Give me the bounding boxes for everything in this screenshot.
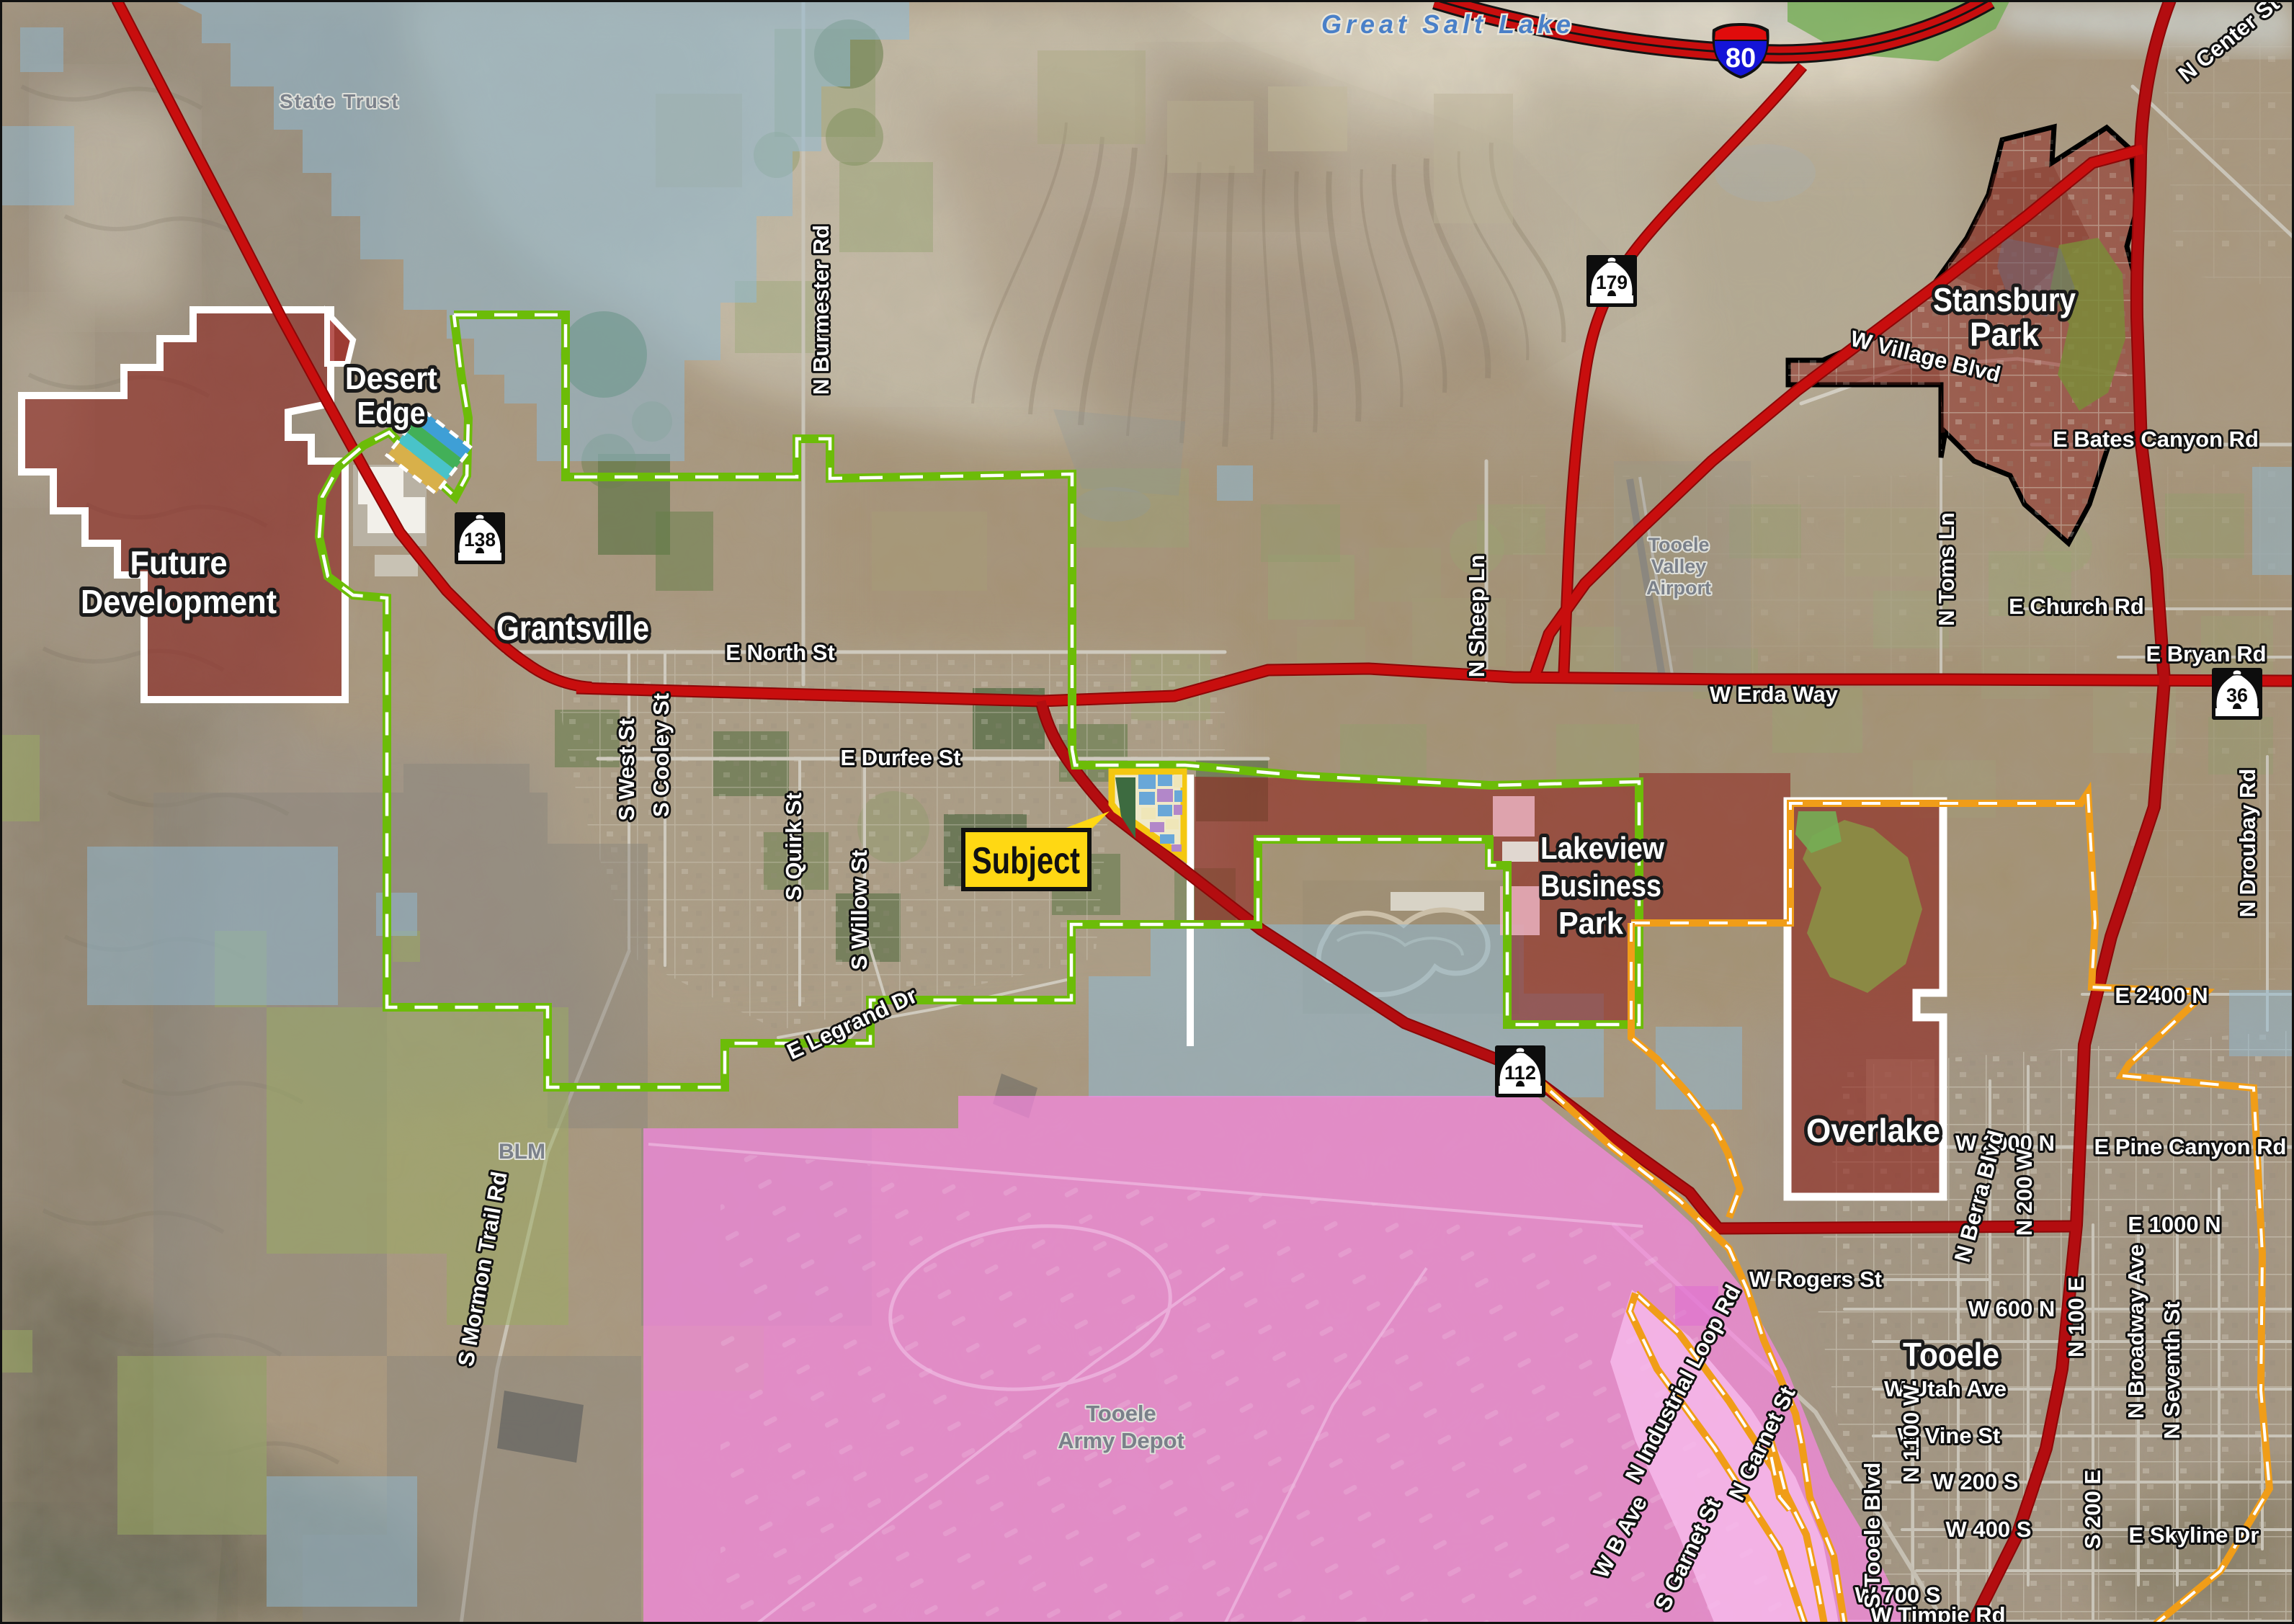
svg-text:Army Depot: Army Depot <box>1058 1428 1184 1453</box>
svg-text:State Trust: State Trust <box>280 90 400 112</box>
svg-text:E Durfee St: E Durfee St <box>840 745 960 770</box>
svg-text:Tooele: Tooele <box>1648 534 1709 556</box>
svg-text:N Burmester Rd: N Burmester Rd <box>808 225 834 395</box>
svg-text:S Cooley St: S Cooley St <box>648 693 674 817</box>
svg-text:S 200 E: S 200 E <box>2080 1470 2105 1549</box>
svg-text:E 2400 N: E 2400 N <box>2115 983 2208 1008</box>
svg-text:S Quirk St: S Quirk St <box>781 793 806 901</box>
svg-text:S Tooele Blvd: S Tooele Blvd <box>1860 1463 1885 1609</box>
svg-text:Tooele: Tooele <box>1903 1336 1999 1373</box>
svg-text:N 1100 W: N 1100 W <box>1898 1384 1924 1483</box>
svg-text:Stansbury: Stansbury <box>1933 281 2076 318</box>
svg-text:W Rogers St: W Rogers St <box>1749 1267 1882 1292</box>
svg-text:138: 138 <box>464 529 496 550</box>
svg-text:E Bryan Rd: E Bryan Rd <box>2146 641 2266 666</box>
svg-text:E Bates Canyon Rd: E Bates Canyon Rd <box>2053 427 2259 452</box>
svg-text:Overlake: Overlake <box>1806 1112 1940 1149</box>
svg-text:W Erda Way: W Erda Way <box>1710 682 1839 707</box>
svg-text:Valley: Valley <box>1651 556 1707 577</box>
svg-text:E Skyline Dr: E Skyline Dr <box>2129 1522 2259 1548</box>
svg-text:Desert: Desert <box>345 361 437 396</box>
svg-text:N Sheep Ln: N Sheep Ln <box>1464 555 1489 678</box>
svg-text:W Timpie Rd: W Timpie Rd <box>1870 1602 2005 1624</box>
svg-text:Business: Business <box>1540 868 1661 904</box>
svg-text:112: 112 <box>1504 1062 1536 1084</box>
svg-text:Subject: Subject <box>972 840 1080 882</box>
svg-text:36: 36 <box>2226 684 2248 706</box>
svg-text:Park: Park <box>1970 316 2039 353</box>
svg-text:Grantsville: Grantsville <box>496 610 649 648</box>
svg-text:Development: Development <box>81 583 277 620</box>
svg-text:E Church Rd: E Church Rd <box>2009 594 2144 619</box>
svg-text:E North St: E North St <box>726 640 835 665</box>
svg-text:W 400 S: W 400 S <box>1946 1517 2032 1542</box>
svg-text:Great Salt Lake: Great Salt Lake <box>1321 9 1575 39</box>
svg-text:E 1000 N: E 1000 N <box>2128 1212 2221 1237</box>
svg-text:N Broadway Ave: N Broadway Ave <box>2123 1244 2148 1419</box>
svg-text:N 100 E: N 100 E <box>2063 1277 2089 1357</box>
svg-text:Airport: Airport <box>1646 577 1711 599</box>
svg-text:N Seventh St: N Seventh St <box>2159 1301 2184 1439</box>
svg-text:Lakeview: Lakeview <box>1540 831 1665 866</box>
svg-text:S West St: S West St <box>614 718 639 821</box>
svg-text:179: 179 <box>1596 272 1628 293</box>
svg-text:E Pine Canyon Rd: E Pine Canyon Rd <box>2094 1134 2287 1159</box>
svg-text:N Toms Ln: N Toms Ln <box>1934 512 1959 626</box>
svg-text:Park: Park <box>1558 906 1623 941</box>
svg-text:80: 80 <box>1726 43 1756 73</box>
svg-text:N 200 W: N 200 W <box>2012 1148 2037 1236</box>
svg-text:BLM: BLM <box>499 1140 545 1164</box>
svg-text:S Willow St: S Willow St <box>847 850 872 971</box>
svg-text:Tooele: Tooele <box>1086 1401 1156 1426</box>
svg-text:Future: Future <box>130 544 228 581</box>
svg-text:Edge: Edge <box>357 396 426 431</box>
svg-text:W 600 N: W 600 N <box>1968 1296 2056 1321</box>
svg-text:N Droubay Rd: N Droubay Rd <box>2235 769 2260 918</box>
svg-text:W 200 S: W 200 S <box>1933 1469 2019 1494</box>
